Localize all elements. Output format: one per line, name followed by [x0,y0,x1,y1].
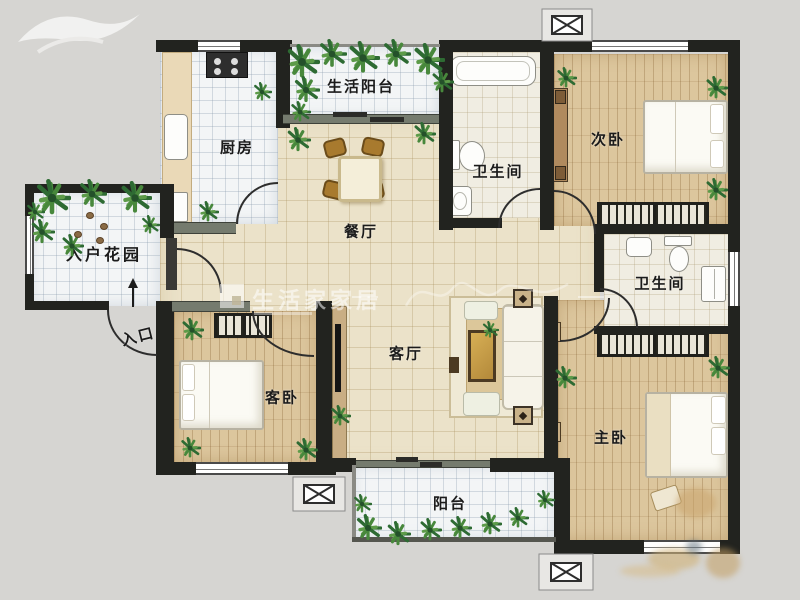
wardrobe [597,332,709,357]
pillow [710,140,724,168]
plant-icon [354,514,382,542]
window [198,40,240,52]
garden-pebble [100,223,108,230]
plant-icon [294,438,318,462]
plant-icon [352,494,372,514]
plant-icon [29,219,55,245]
artifact-smudge [686,540,702,554]
bedroom2-door-panel [553,88,568,182]
plant-icon [197,201,219,223]
stove-icon [206,52,248,78]
pillow [711,427,726,455]
wall [540,40,554,230]
kitchen-sink [164,114,188,160]
window [592,40,688,52]
armchair [463,392,500,416]
plant-icon [555,67,577,89]
label-master-bedroom: 主卧 [594,427,628,448]
wall [25,301,109,310]
plant-icon [381,39,411,69]
plant-icon [478,512,502,536]
floor-plan: 入户花园 入口 厨房 生活阳台 卫生间 次卧 餐厅 客厅 卫生间 客卧 主卧 阳… [0,0,800,600]
plant-icon [292,76,320,104]
pillow [710,104,724,134]
watermark-logo [220,284,244,308]
label-service-balcony: 生活阳台 [327,76,395,97]
plant-icon [346,41,380,75]
label-dining: 餐厅 [344,221,378,242]
plant-icon [385,521,411,547]
wall [322,458,356,472]
label-bedroom2: 次卧 [591,129,625,150]
dining-table [338,156,382,202]
label-balcony: 阳台 [433,493,467,514]
plant-icon [252,82,272,102]
plant-icon [285,127,311,153]
wall [595,224,728,234]
watermark-dash [352,296,378,298]
toilet-bowl [669,246,689,272]
watermark-subtext [254,312,312,315]
plant-icon [704,178,728,202]
plant-icon [329,405,351,427]
wall [316,301,332,475]
wall [490,458,556,472]
wall [594,234,604,292]
pillow [711,396,726,424]
label-bath2: 卫生间 [634,273,685,294]
ac-unit-icon [541,8,593,42]
plant-icon [77,179,107,209]
plant-icon [317,39,347,69]
floor-lamp [449,357,459,373]
bathtub [450,56,536,86]
sliding-door-leaf [420,462,442,467]
plant-icon [430,70,454,94]
wall [160,184,174,238]
plant-icon [179,437,201,459]
plant-icon [180,318,204,342]
artifact-smudge [620,565,680,577]
pillow [182,364,195,391]
artifact-smudge [706,548,740,578]
plant-icon [704,76,728,100]
ac-unit-icon [292,476,346,512]
plant-icon [553,366,577,390]
garden-pebble [96,237,104,244]
window [728,252,740,306]
sliding-door-leaf [396,457,418,462]
plant-icon [481,321,499,339]
plant-icon [118,181,152,215]
tv-icon [335,324,341,392]
label-living: 客厅 [389,343,423,364]
watermark-dash [578,296,604,298]
ac-unit-icon [538,553,594,591]
plant-icon [448,516,472,540]
plant-icon [284,44,320,80]
plant-icon [25,202,45,222]
label-bath1: 卫生间 [472,161,523,182]
entrance-arrow [126,278,140,308]
sliding-door-leaf [333,112,367,117]
side-table [513,406,533,425]
bath2-sink [626,237,652,257]
watermark-script [398,266,578,318]
wall [25,274,34,304]
plant-icon [418,518,442,542]
watermark-text: 生活家家居 [252,283,382,315]
wall [156,301,174,475]
shower [701,266,726,302]
plant-icon [706,356,730,380]
leaf-sketch [8,2,148,66]
sofa [502,304,544,410]
label-kitchen: 厨房 [220,137,254,158]
label-guest-bedroom: 客卧 [265,387,299,408]
garden-pebble [74,231,82,238]
plant-icon [535,490,555,510]
plant-icon [412,122,436,146]
garden-pebble [86,212,94,219]
plant-icon [140,215,160,235]
wall [440,218,502,228]
artifact-smudge [676,488,716,518]
sliding-door-leaf [370,117,404,122]
plant-icon [60,234,84,258]
partition-wall [174,222,236,234]
toilet-tank [664,236,692,246]
window [196,462,288,475]
entry-door-leaf [166,238,177,290]
plant-icon [507,507,529,529]
plant-icon [289,101,311,123]
pillow [182,394,195,421]
